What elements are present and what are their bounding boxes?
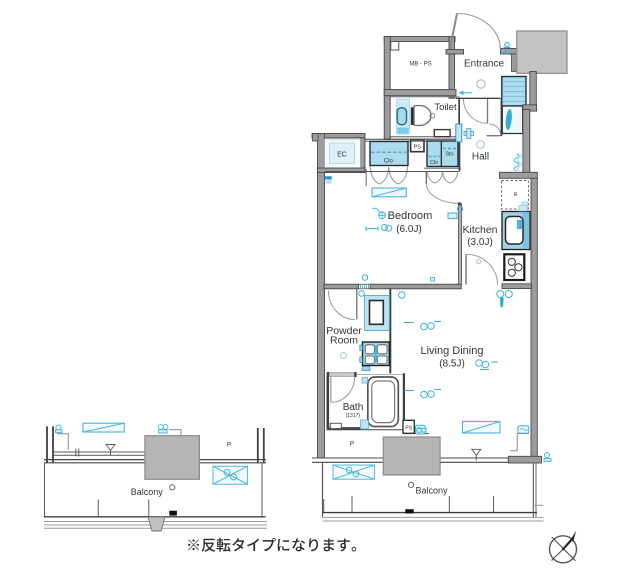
svg-text:P: P (350, 441, 354, 448)
svg-text:Room: Room (330, 335, 358, 347)
svg-text:(3.0J): (3.0J) (467, 237, 493, 248)
svg-text:Sto: Sto (445, 152, 453, 158)
svg-text:Kitchen: Kitchen (462, 224, 497, 236)
svg-text:EC: EC (337, 152, 347, 159)
svg-text:Living Dining: Living Dining (421, 345, 484, 357)
svg-text:Entrance: Entrance (464, 59, 504, 70)
svg-text:PS: PS (405, 426, 412, 432)
svg-text:PS: PS (414, 145, 422, 151)
svg-text:Balcony: Balcony (131, 487, 164, 497)
svg-text:P: P (227, 442, 231, 449)
svg-text:(1317): (1317) (346, 413, 361, 419)
svg-text:R: R (514, 192, 518, 198)
svg-text:Clo: Clo (430, 160, 438, 166)
svg-text:Balcony: Balcony (415, 486, 448, 496)
svg-text:(8.5J): (8.5J) (439, 359, 465, 370)
svg-text:Bedroom: Bedroom (388, 210, 433, 222)
svg-text:MB - PS: MB - PS (409, 62, 431, 68)
svg-text:Toilet: Toilet (434, 102, 457, 113)
svg-text:(6.0J): (6.0J) (396, 224, 422, 235)
svg-text:Bath: Bath (343, 402, 364, 413)
svg-text:Hall: Hall (472, 152, 489, 163)
svg-text:Clo: Clo (384, 159, 394, 165)
